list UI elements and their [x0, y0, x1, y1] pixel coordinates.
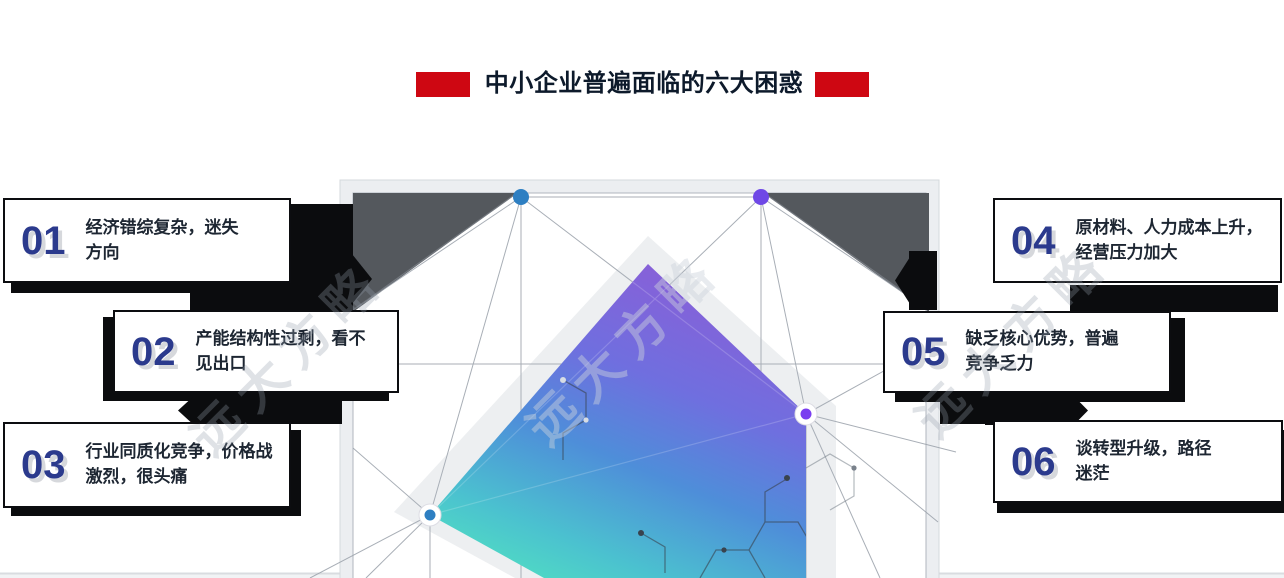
card-02-text: 产能结构性过剩，看不 见出口 — [196, 327, 366, 376]
card-05-number: 05 — [901, 332, 946, 372]
infographic-canvas: 01 经济错综复杂，迷失 方向 02 产能结构性过剩，看不 见出口 03 行业同… — [0, 0, 1284, 578]
card-03-number: 03 — [21, 445, 66, 485]
card-06-number: 06 — [1011, 442, 1056, 482]
top-right-dot — [753, 189, 769, 205]
card-06: 06 谈转型升级，路径 迷茫 — [993, 420, 1283, 503]
card-01: 01 经济错综复杂，迷失 方向 — [3, 198, 291, 283]
card-05-text: 缺乏核心优势，普遍 竞争乏力 — [966, 327, 1119, 376]
card-03: 03 行业同质化竞争，价格战 激烈，很头痛 — [3, 422, 291, 508]
card-05: 05 缺乏核心优势，普遍 竞争乏力 — [883, 311, 1171, 393]
molecule-dot — [851, 465, 856, 470]
card-04-text: 原材料、人力成本上升， 经营压力加大 — [1076, 216, 1263, 265]
top-left-dot — [513, 189, 529, 205]
ribbon-01b — [190, 283, 353, 310]
card-02-number: 02 — [131, 332, 176, 372]
card-01-text: 经济错综复杂，迷失 方向 — [86, 216, 239, 265]
left-ring-node — [419, 504, 441, 526]
card-01-number: 01 — [21, 221, 66, 261]
right-ring-node — [795, 403, 817, 425]
page-title: 中小企业普遍面临的六大困惑 — [472, 70, 816, 98]
card-06-text: 谈转型升级，路径 迷茫 — [1076, 437, 1212, 486]
card-02: 02 产能结构性过剩，看不 见出口 — [113, 310, 399, 393]
ribbon-02 — [178, 397, 342, 424]
card-04: 04 原材料、人力成本上升， 经营压力加大 — [993, 198, 1282, 283]
ribbon-04b — [1070, 285, 1278, 312]
title-accent-left — [416, 72, 470, 97]
card-03-text: 行业同质化竞争，价格战 激烈，很头痛 — [86, 440, 273, 489]
card-04-number: 04 — [1011, 221, 1056, 261]
title-accent-right — [815, 72, 869, 97]
ribbon-04-slab — [909, 251, 937, 310]
